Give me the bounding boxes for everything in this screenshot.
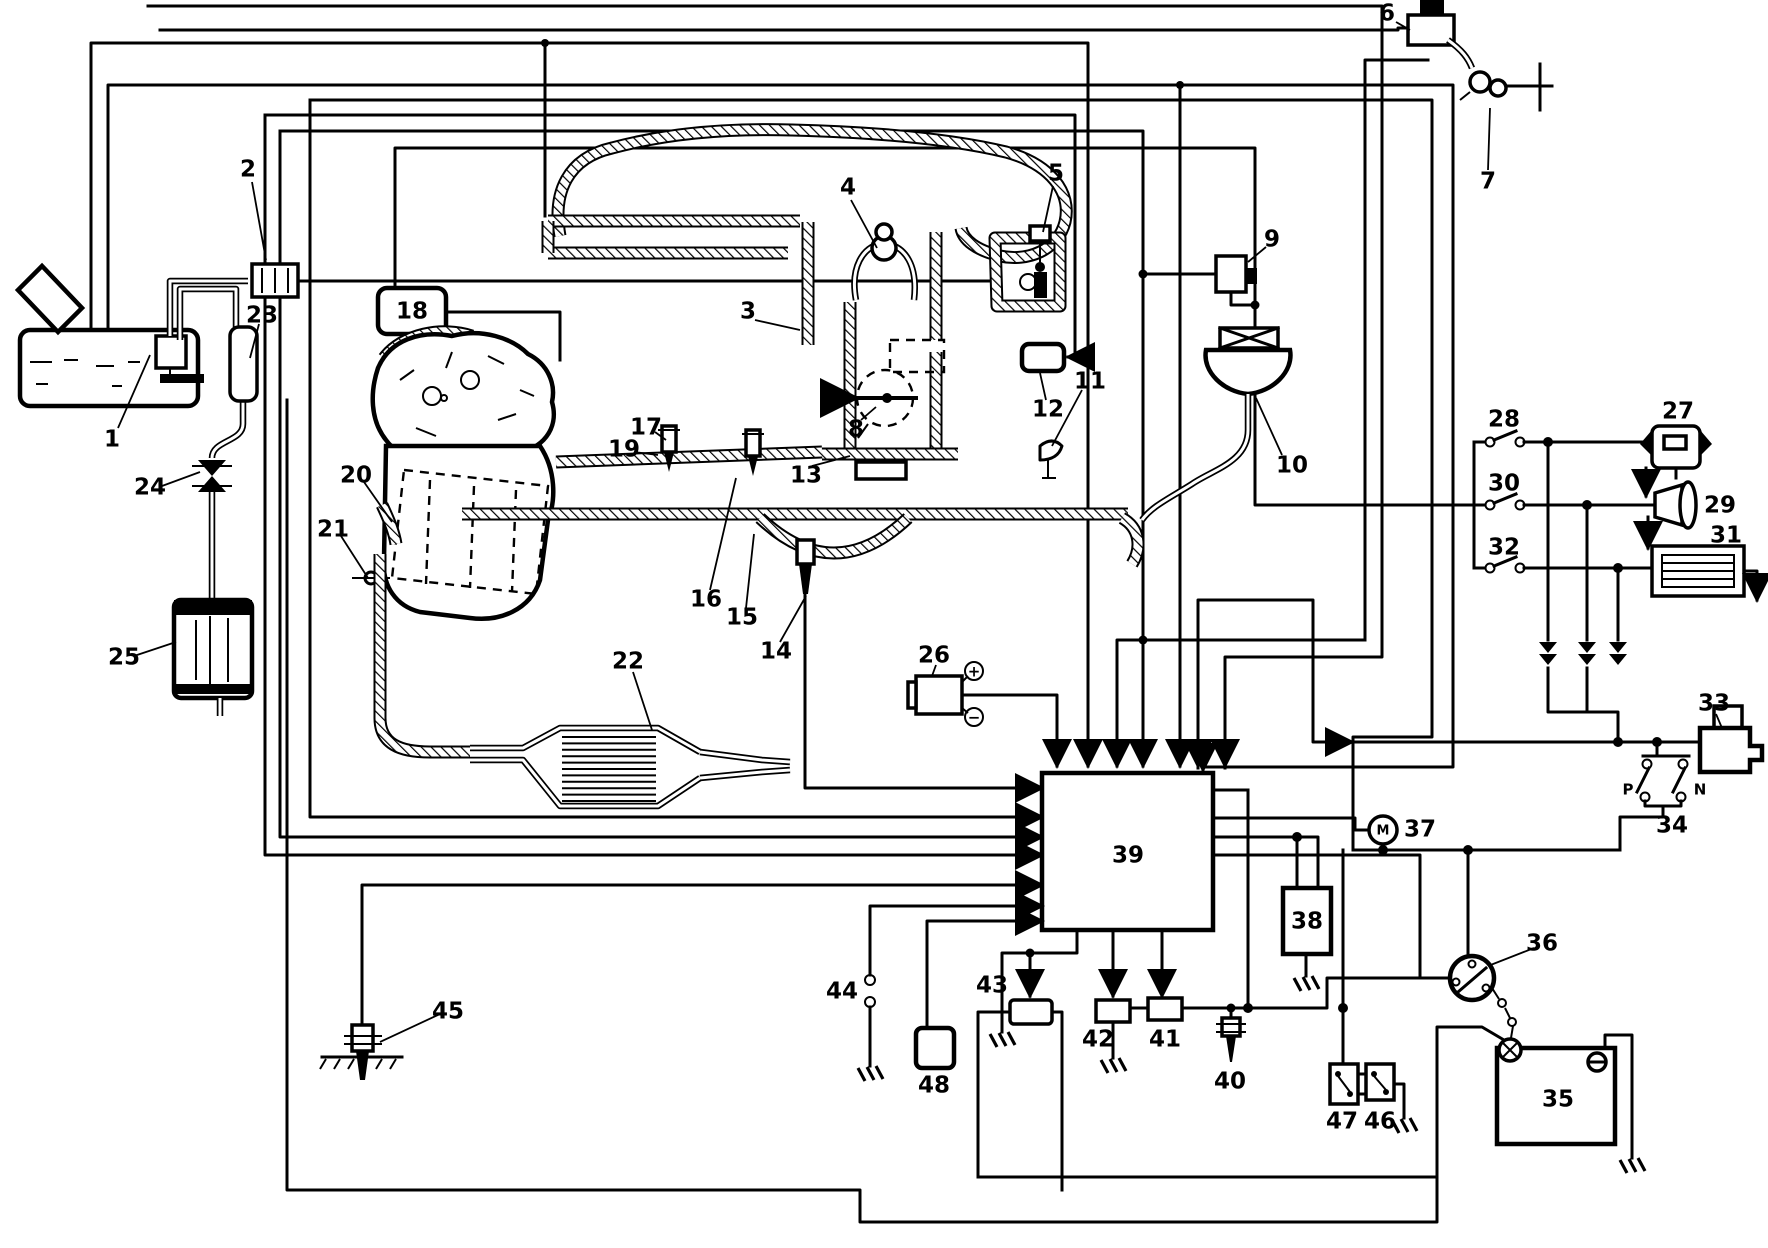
starter-contact-chain [1492, 988, 1516, 1038]
label-26: 26 [918, 643, 950, 669]
label-29: 29 [1704, 493, 1736, 519]
sensor-box-12 [1022, 344, 1064, 371]
label-9: 9 [1264, 227, 1280, 253]
vapor-valve-6 [1408, 0, 1472, 68]
label-27: 27 [1662, 399, 1694, 425]
coil-plus: + [968, 663, 981, 681]
heater-resistor-31 [1652, 546, 1757, 600]
label-8: 8 [848, 417, 864, 443]
label-21: 21 [317, 517, 349, 543]
connector-arrows [1539, 442, 1627, 747]
label-14: 14 [760, 639, 792, 665]
park-letter: P [1623, 781, 1634, 799]
test-spark-plug-45 [320, 1025, 402, 1080]
label-43: 43 [976, 973, 1008, 999]
neutral-letter: N [1694, 781, 1707, 799]
ignition-coil-26 [908, 662, 1057, 766]
idle-valve-11 [1040, 441, 1062, 478]
label-20: 20 [340, 463, 372, 489]
label-19: 19 [608, 437, 640, 463]
label-22: 22 [612, 649, 644, 675]
label-31: 31 [1710, 523, 1742, 549]
label-7: 7 [1480, 169, 1496, 195]
label-15: 15 [726, 605, 758, 631]
label-4: 4 [840, 175, 856, 201]
fuel-filter-25 [174, 600, 252, 716]
relay-47 [1330, 1064, 1358, 1104]
vacuum-valve-9 [1139, 256, 1260, 310]
label-36: 36 [1526, 931, 1558, 957]
label-10: 10 [1276, 453, 1308, 479]
label-25: 25 [108, 645, 140, 671]
label-47: 47 [1326, 1109, 1358, 1135]
label-41: 41 [1149, 1027, 1181, 1053]
label-16: 16 [690, 587, 722, 613]
label-42: 42 [1082, 1027, 1114, 1053]
label-48: 48 [918, 1073, 950, 1099]
label-18: 18 [396, 299, 428, 325]
purge-valve-2 [252, 264, 993, 297]
label-39: 39 [1112, 843, 1144, 869]
label-46: 46 [1364, 1109, 1396, 1135]
label-2: 2 [240, 157, 256, 183]
label-35: 35 [1542, 1087, 1574, 1113]
filler-neck [18, 266, 82, 332]
label-38: 38 [1291, 909, 1323, 935]
label-3: 3 [740, 299, 756, 325]
intake-manifold [556, 426, 822, 476]
vapor-separator-canister [230, 327, 257, 401]
spark-plug-40 [1216, 1004, 1246, 1063]
label-12: 12 [1032, 397, 1064, 423]
coil-minus: − [968, 709, 981, 727]
horn-29 [1648, 482, 1696, 548]
label-37: 37 [1404, 817, 1436, 843]
label-34: 34 [1656, 813, 1688, 839]
label-13: 13 [790, 463, 822, 489]
label-28: 28 [1488, 407, 1520, 433]
check-valve-24 [192, 460, 232, 492]
label-23: 23 [246, 303, 278, 329]
label-24: 24 [134, 475, 166, 501]
label-1: 1 [104, 427, 120, 453]
label-44: 44 [826, 979, 858, 1005]
motor-letter: M [1377, 824, 1390, 839]
label-32: 32 [1488, 535, 1520, 561]
label-6: 6 [1379, 1, 1395, 27]
throttle-linkage-7 [1460, 64, 1552, 110]
label-45: 45 [432, 999, 464, 1025]
vacuum-wiring-diagram: 1 2 3 4 5 6 7 8 9 10 11 12 13 14 15 16 1… [0, 0, 1768, 1248]
label-5: 5 [1048, 161, 1064, 187]
fuel-injector [742, 430, 764, 476]
label-11: 11 [1074, 369, 1106, 395]
motor-37 [1213, 816, 1397, 850]
label-33: 33 [1698, 691, 1730, 717]
number-labels: 1 2 3 4 5 6 7 8 9 10 11 12 13 14 15 16 1… [104, 1, 1742, 1135]
label-30: 30 [1488, 471, 1520, 497]
oxygen-sensor-14 [797, 540, 814, 594]
label-40: 40 [1214, 1069, 1246, 1095]
diagram-canvas: 1 2 3 4 5 6 7 8 9 10 11 12 13 14 15 16 1… [0, 0, 1768, 1248]
